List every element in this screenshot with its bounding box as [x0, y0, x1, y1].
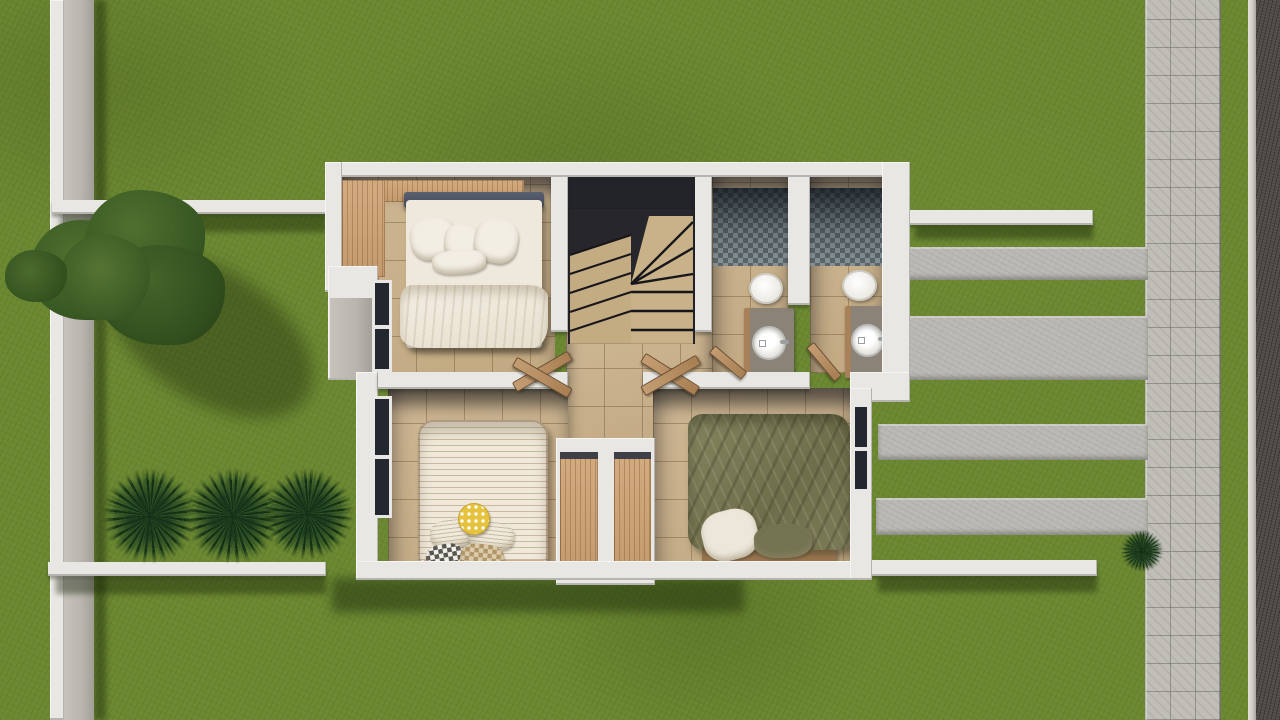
shrub: [5, 250, 67, 302]
window-mullion: [375, 325, 389, 329]
shower-mosaic: [713, 188, 788, 266]
boundary-wall-shadow: [94, 0, 106, 720]
wall-stairhall-right: [695, 177, 712, 332]
drain-icon: [858, 337, 865, 344]
tree-canopy: [60, 235, 150, 320]
palm-plant: [262, 468, 354, 560]
wall-south: [356, 561, 872, 580]
asphalt-road: [1256, 0, 1280, 720]
garden-wall-shadow: [56, 576, 326, 594]
bedroom-3-window: [852, 404, 870, 492]
vanity: [744, 308, 794, 376]
bed-2-polkadot-cushion: [458, 503, 490, 535]
toilet: [749, 273, 783, 304]
boundary-wall-top: [64, 0, 94, 720]
garden-wall-upper-right: [908, 210, 1093, 225]
palm-plant: [102, 468, 198, 564]
driveway-strip: [878, 424, 1148, 460]
wardrobe-side-panel: [342, 180, 385, 277]
closet-panel-shadow: [614, 452, 651, 459]
render-canvas: [0, 0, 1280, 720]
faucet-icon: [780, 340, 789, 344]
garden-wall-shadow: [878, 576, 1097, 592]
window-mullion: [375, 455, 389, 459]
garden-wall-lower-right: [870, 560, 1097, 576]
boundary-wall: [50, 0, 64, 720]
closet-panel-shadow: [560, 452, 598, 459]
paver-sidewalk: [1145, 0, 1221, 720]
bedroom-2-window: [372, 396, 392, 518]
small-palm-plant: [1120, 530, 1164, 572]
closet-wood-panel: [614, 452, 651, 578]
driveway-strip: [905, 247, 1148, 280]
driveway-strip: [905, 316, 1148, 380]
staircase: [568, 208, 695, 344]
bed-1-duvet: [400, 285, 548, 348]
driveway-strip: [876, 498, 1148, 535]
closet-wood-panel: [560, 452, 598, 578]
window-mullion: [855, 447, 867, 451]
shower-mosaic: [810, 188, 882, 266]
house-shadow: [332, 578, 744, 612]
bed-3-olive-pillow: [753, 523, 812, 559]
wall-east-upper: [882, 162, 910, 402]
wall-stairhall-left: [551, 177, 568, 332]
bedroom-1-window: [372, 280, 392, 372]
drain-icon: [759, 340, 766, 347]
wall-bathroom-divider: [788, 177, 810, 305]
road-curb: [1248, 0, 1256, 720]
wall-north: [325, 162, 910, 177]
garden-wall-shadow: [915, 225, 1093, 239]
garden-wall-lower-left: [48, 562, 326, 576]
toilet: [842, 270, 877, 301]
bumpout-ledge: [330, 298, 374, 378]
